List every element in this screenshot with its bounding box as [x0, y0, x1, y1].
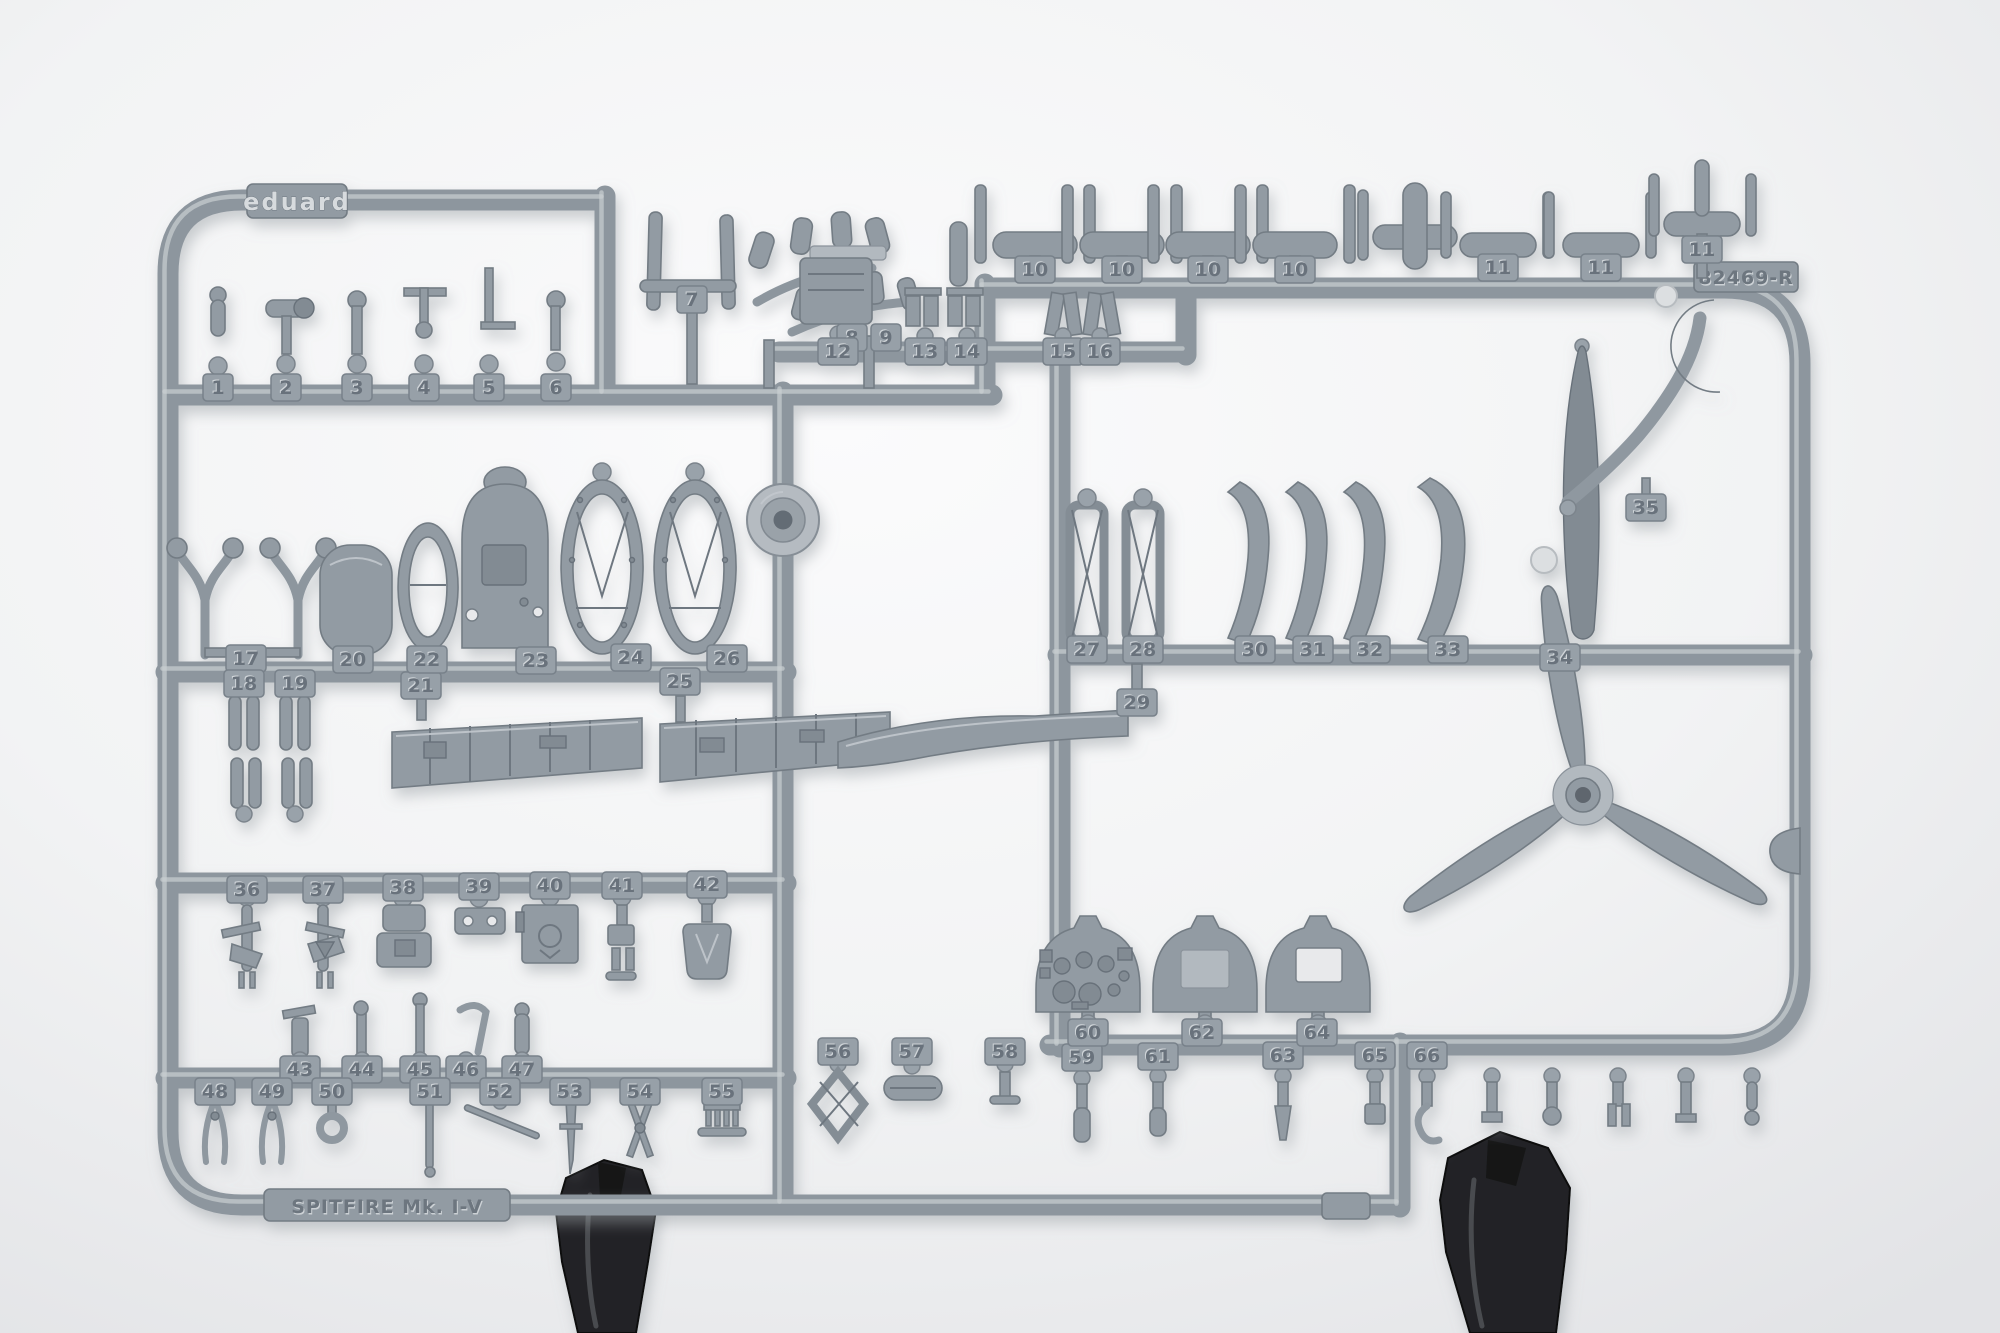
part-number-tag-48: 4848: [195, 1078, 235, 1105]
part-61-hanger: [1150, 1068, 1166, 1136]
svg-text:33: 33: [1435, 639, 1461, 661]
part-59-hanger: [1074, 1070, 1090, 1142]
part-number-tag-55: 5555: [702, 1078, 742, 1105]
svg-text:55: 55: [709, 1081, 735, 1103]
blank-code-plate: [1322, 1193, 1370, 1219]
part-number-tag-21: 2121: [401, 672, 441, 699]
part-number-tag-29: 2929: [1117, 689, 1157, 716]
svg-text:11: 11: [1689, 239, 1715, 261]
part-number-tag-60: 6060: [1068, 1019, 1108, 1046]
eduard-logo-plate: eduard: [243, 184, 351, 218]
svg-text:51: 51: [417, 1081, 443, 1103]
svg-text:41: 41: [609, 875, 635, 897]
part-number-tag-13: 1313: [905, 338, 945, 365]
part-number-tag-10: 1010: [1275, 256, 1315, 283]
part-number-tag-17: 1717: [226, 645, 266, 672]
svg-text:20: 20: [340, 649, 366, 671]
svg-text:37: 37: [310, 879, 336, 901]
svg-text:48: 48: [202, 1081, 228, 1103]
part-number-tag-11: 1111: [1581, 254, 1621, 281]
svg-text:52: 52: [487, 1081, 513, 1103]
svg-text:39: 39: [466, 876, 492, 898]
part-number-tag-25: 2525: [660, 668, 700, 695]
part-20-seat-back: [320, 545, 392, 655]
part-number-tag-37: 3737: [303, 876, 343, 903]
part-number-tag-22: 2222: [407, 646, 447, 673]
part-number-tag-2: 22: [271, 374, 301, 401]
svg-text:31: 31: [1300, 639, 1326, 661]
svg-text:29: 29: [1124, 692, 1150, 714]
part-number-tag-28: 2828: [1123, 636, 1163, 663]
svg-text:13: 13: [912, 341, 938, 363]
svg-text:59: 59: [1069, 1047, 1095, 1069]
part-number-tag-36: 3636: [227, 876, 267, 903]
part-number-tag-30: 3030: [1235, 636, 1275, 663]
svg-text:57: 57: [899, 1041, 925, 1063]
svg-text:60: 60: [1075, 1022, 1101, 1044]
svg-text:34: 34: [1547, 647, 1573, 669]
svg-text:6: 6: [549, 377, 562, 399]
part-number-tag-23: 2323: [516, 647, 556, 674]
svg-text:50: 50: [319, 1081, 345, 1103]
part-number-tag-54: 5454: [620, 1078, 660, 1105]
svg-text:22: 22: [414, 649, 440, 671]
svg-text:9: 9: [879, 327, 892, 349]
kit-name-plate: SPITFIRE Mk. I-V SPITFIRE Mk. I-V: [264, 1189, 510, 1221]
svg-text:28: 28: [1130, 639, 1156, 661]
svg-text:7: 7: [685, 289, 698, 311]
svg-text:10: 10: [1109, 259, 1135, 281]
part-number-tag-61: 6161: [1138, 1043, 1178, 1070]
svg-text:23: 23: [523, 650, 549, 672]
svg-text:21: 21: [408, 675, 434, 697]
svg-text:3: 3: [350, 377, 363, 399]
part-number-tag-65: 6565: [1355, 1042, 1395, 1069]
part-51-thin-rod: [425, 1100, 435, 1177]
part-number-tag-42: 4242: [687, 871, 727, 898]
part-number-tag-57: 5757: [892, 1038, 932, 1065]
part-number-tag-20: 2020: [333, 646, 373, 673]
part-number-tag-63: 6363: [1263, 1042, 1303, 1069]
svg-text:10: 10: [1022, 259, 1048, 281]
svg-text:66: 66: [1414, 1045, 1440, 1067]
svg-text:10: 10: [1195, 259, 1221, 281]
part-number-tag-9: 99: [871, 324, 901, 351]
svg-text:1: 1: [211, 377, 224, 399]
part-number-tag-33: 3333: [1428, 636, 1468, 663]
svg-text:63: 63: [1270, 1045, 1296, 1067]
part-small-hanger: [1744, 1068, 1760, 1125]
svg-text:49: 49: [259, 1081, 285, 1103]
part-number-tag-4: 44: [409, 374, 439, 401]
part-number-tag-62: 6262: [1182, 1019, 1222, 1046]
injection-gate-hub: [747, 484, 819, 556]
svg-text:16: 16: [1087, 341, 1113, 363]
svg-text:35: 35: [1633, 497, 1659, 519]
svg-text:32: 32: [1357, 639, 1383, 661]
part-number-tag-50: 5050: [312, 1078, 352, 1105]
svg-text:42: 42: [694, 874, 720, 896]
sprue-code-text: 82469-R: [1698, 267, 1794, 289]
kit-name-text: SPITFIRE Mk. I-V: [291, 1196, 483, 1218]
svg-text:61: 61: [1145, 1046, 1171, 1068]
svg-text:14: 14: [954, 341, 980, 363]
part-number-tag-6: 66: [541, 374, 571, 401]
part-number-tag-31: 3131: [1293, 636, 1333, 663]
svg-text:25: 25: [667, 671, 693, 693]
part-number-tag-38: 3838: [383, 874, 423, 901]
photo-stage: eduard 82469-R 82469-R SPITFIRE Mk. I-V …: [0, 0, 2000, 1333]
svg-text:27: 27: [1074, 639, 1100, 661]
part-number-tag-15: 1515: [1043, 338, 1083, 365]
part-number-tag-53: 5353: [550, 1078, 590, 1105]
part-number-tag-34: 3434: [1540, 644, 1580, 671]
part-number-tag-56: 5656: [818, 1038, 858, 1065]
part-number-tag-39: 3939: [459, 873, 499, 900]
svg-text:10: 10: [1282, 259, 1308, 281]
svg-text:12: 12: [825, 341, 851, 363]
part-number-tag-14: 1414: [947, 338, 987, 365]
sprue-photo: eduard 82469-R 82469-R SPITFIRE Mk. I-V …: [0, 0, 2000, 1333]
part-number-tag-51: 5151: [410, 1078, 450, 1105]
part-number-tag-10: 1010: [1188, 256, 1228, 283]
part-1-knob: [209, 287, 227, 375]
part-number-tag-49: 4949: [252, 1078, 292, 1105]
svg-text:2: 2: [279, 377, 292, 399]
svg-text:53: 53: [557, 1081, 583, 1103]
svg-text:19: 19: [282, 673, 308, 695]
svg-text:11: 11: [1485, 257, 1511, 279]
part-number-tag-35: 3535: [1626, 494, 1666, 521]
svg-text:24: 24: [618, 647, 644, 669]
part-number-tag-11: 1111: [1682, 236, 1722, 263]
svg-text:17: 17: [233, 648, 259, 670]
svg-text:58: 58: [992, 1041, 1018, 1063]
eduard-logo-text: eduard: [243, 188, 351, 216]
part-number-tag-41: 4141: [602, 872, 642, 899]
svg-text:56: 56: [825, 1041, 851, 1063]
part-number-tag-5: 55: [474, 374, 504, 401]
part-number-tag-58: 5858: [985, 1038, 1025, 1065]
part-number-tag-10: 1010: [1102, 256, 1142, 283]
svg-text:40: 40: [537, 875, 563, 897]
svg-text:38: 38: [390, 877, 416, 899]
part-number-tag-18: 1818: [224, 670, 264, 697]
svg-text:30: 30: [1242, 639, 1268, 661]
part-number-tag-59: 5959: [1062, 1044, 1102, 1071]
part-number-tag-19: 1919: [275, 670, 315, 697]
part-single-exhaust-stub: [950, 222, 967, 286]
svg-text:4: 4: [417, 377, 430, 399]
svg-text:44: 44: [349, 1059, 375, 1081]
svg-text:64: 64: [1304, 1022, 1330, 1044]
svg-text:26: 26: [714, 648, 740, 670]
part-number-tag-16: 1616: [1080, 338, 1120, 365]
part-number-tag-3: 33: [342, 374, 372, 401]
part-number-tag-46: 4646: [446, 1056, 486, 1083]
svg-text:15: 15: [1050, 341, 1076, 363]
sprue-code-plate: 82469-R 82469-R: [1694, 262, 1798, 292]
part-number-tag-52: 5252: [480, 1078, 520, 1105]
part-number-tag-64: 6464: [1297, 1019, 1337, 1046]
part-number-tag-10: 1010: [1015, 256, 1055, 283]
part-number-tag-66: 6666: [1407, 1042, 1447, 1069]
part-number-tag-40: 4040: [530, 872, 570, 899]
svg-text:36: 36: [234, 879, 260, 901]
part-number-tag-11: 1111: [1478, 254, 1518, 281]
part-number-tag-27: 2727: [1067, 636, 1107, 663]
svg-text:46: 46: [453, 1059, 479, 1081]
svg-text:18: 18: [231, 673, 257, 695]
svg-text:11: 11: [1588, 257, 1614, 279]
svg-text:65: 65: [1362, 1045, 1388, 1067]
svg-text:43: 43: [287, 1059, 313, 1081]
part-number-tag-32: 3232: [1350, 636, 1390, 663]
part-number-tag-1: 11: [203, 374, 233, 401]
svg-text:54: 54: [627, 1081, 653, 1103]
part-number-tag-12: 1212: [818, 338, 858, 365]
part-number-tag-7: 77: [677, 286, 707, 313]
svg-text:62: 62: [1189, 1022, 1215, 1044]
part-number-tag-26: 2626: [707, 645, 747, 672]
svg-text:5: 5: [482, 377, 495, 399]
part-number-tag-24: 2424: [611, 644, 651, 671]
